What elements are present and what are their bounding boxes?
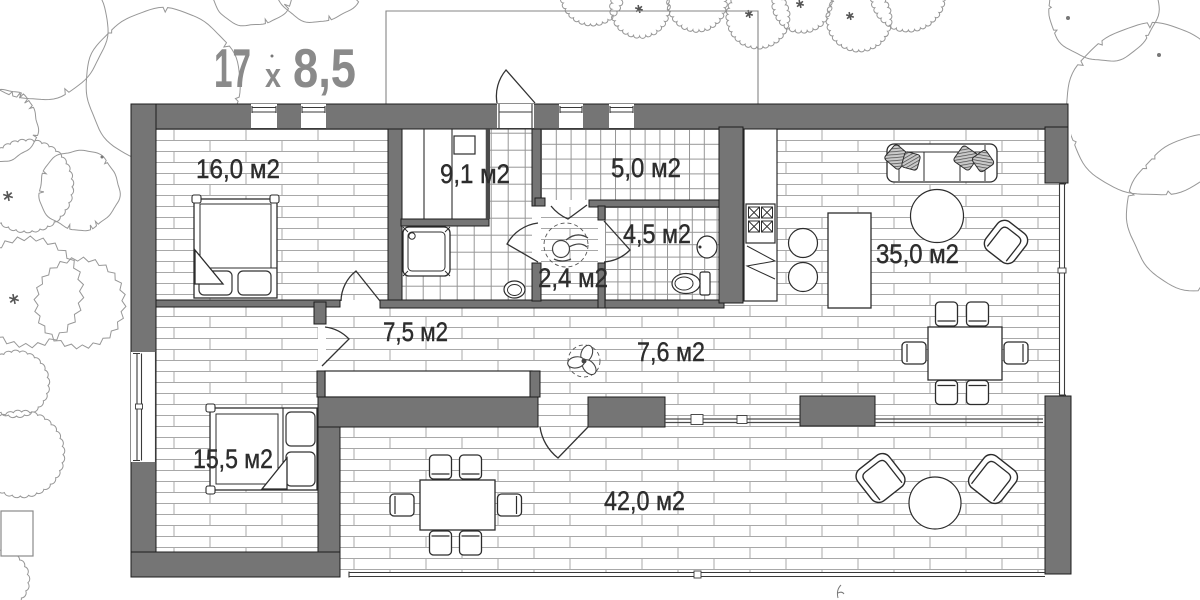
svg-text:15,5 м2: 15,5 м2 — [193, 444, 273, 474]
svg-text:4,5 м2: 4,5 м2 — [623, 219, 691, 249]
svg-text:42,0 м2: 42,0 м2 — [604, 486, 685, 516]
svg-text:5,0 м2: 5,0 м2 — [611, 153, 681, 183]
svg-text:2,4 м2: 2,4 м2 — [538, 263, 608, 293]
svg-text:35,0 м2: 35,0 м2 — [876, 239, 959, 269]
svg-text:16,0 м2: 16,0 м2 — [196, 154, 280, 184]
svg-text:8,5: 8,5 — [293, 37, 356, 99]
svg-text:17: 17 — [214, 37, 251, 99]
svg-text:7,5 м2: 7,5 м2 — [383, 317, 448, 347]
svg-text:9,1 м2: 9,1 м2 — [440, 159, 510, 189]
svg-text:7,6 м2: 7,6 м2 — [637, 337, 705, 367]
svg-text:х: х — [265, 57, 281, 95]
